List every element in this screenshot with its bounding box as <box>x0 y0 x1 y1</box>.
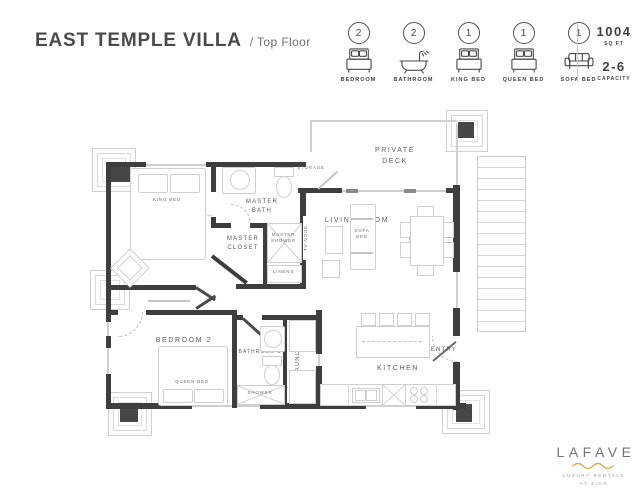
window <box>107 322 109 336</box>
door-arc <box>118 312 143 337</box>
angled-wall <box>211 254 248 284</box>
dining-chair <box>417 206 434 217</box>
pillow <box>170 174 200 193</box>
deck-railing <box>456 124 458 186</box>
brand-squiggle-icon <box>571 461 617 469</box>
sink-basin <box>366 390 377 401</box>
wall <box>211 223 231 228</box>
dining-chair <box>400 242 411 258</box>
feature-label: KING BED <box>451 77 486 83</box>
dryer <box>289 370 316 404</box>
stove-burner <box>420 387 428 395</box>
sqft-value: 1004 <box>586 24 640 39</box>
king-bed-label: KING BED <box>130 197 204 203</box>
feature-label: QUEEN BED <box>503 77 545 83</box>
column-post <box>458 122 474 138</box>
kitchen-island <box>356 326 430 358</box>
wall <box>446 188 460 193</box>
room-label-entry: ENTRY <box>424 346 464 355</box>
sink-basin <box>264 330 282 348</box>
doorway <box>318 354 320 366</box>
window <box>456 272 458 308</box>
bed-icon <box>342 48 376 74</box>
stove-burner <box>410 395 418 403</box>
room-label-tv-nook: TV NOOK <box>303 216 313 260</box>
room-label-kitchen: KITCHEN <box>376 364 420 375</box>
coffee-table <box>325 226 343 254</box>
sofa-cushion-line <box>351 218 373 220</box>
bar-stool <box>415 313 430 326</box>
counter-divider <box>348 384 349 404</box>
feature-icons: 2 BEDROOM 2 BATHROOM 1 KING BED 1 QU <box>336 22 601 83</box>
window <box>146 164 206 166</box>
hall-shelf <box>148 300 190 302</box>
page-title: EAST TEMPLE VILLA / Top Floor <box>35 30 311 52</box>
queen-bed-count-badge: 1 <box>513 22 535 44</box>
dining-chair <box>400 222 411 238</box>
villa-name: EAST TEMPLE VILLA <box>35 30 242 52</box>
room-label-master-bath: MASTER BATH <box>238 198 286 217</box>
feature-bedroom: 2 BEDROOM <box>336 22 381 83</box>
feature-queen-bed: 1 QUEEN BED <box>501 22 546 83</box>
deck-railing <box>310 122 312 152</box>
stairs <box>477 156 526 332</box>
capacity-value: 2-6 <box>586 59 640 74</box>
feature-king-bed: 1 KING BED <box>446 22 491 83</box>
dining-table <box>410 216 444 266</box>
wall <box>236 284 306 289</box>
brand-tagline-line2: AT ZION <box>552 480 636 488</box>
sofa-bed-label: SOFA BED <box>349 228 375 241</box>
room-label-linens: LINENS <box>267 269 300 275</box>
dining-chair <box>443 242 454 258</box>
washer <box>289 320 316 352</box>
brand-logo: LAFAVE LUXURY RENTALS AT ZION <box>552 444 636 488</box>
wall <box>316 310 322 354</box>
sink-basin <box>230 170 250 190</box>
door-leaf <box>317 171 337 190</box>
bar-stool <box>379 313 394 326</box>
bed-icon <box>452 48 486 74</box>
room-label-private-deck: PRIVATE DECK <box>370 146 420 168</box>
wall <box>106 162 146 167</box>
wall <box>453 308 460 336</box>
stats-panel: 1004 SQ FT 2-6 CAPACITY <box>577 24 640 82</box>
deck-railing <box>310 120 456 122</box>
bathtub-icon <box>397 48 431 74</box>
pillow <box>163 389 193 403</box>
toilet-bowl <box>276 176 292 198</box>
window <box>107 348 109 374</box>
wall <box>146 310 237 315</box>
pillow <box>194 389 224 403</box>
island-counter-line <box>362 341 422 342</box>
door-jamb <box>404 189 416 193</box>
bedroom-count-badge: 2 <box>348 22 370 44</box>
wall <box>106 285 196 290</box>
counter-divider <box>436 384 437 404</box>
room-label-shower: SHOWER <box>237 390 283 396</box>
door-jamb <box>346 189 358 193</box>
room-label-master-closet: MASTER CLOSET <box>221 235 265 254</box>
sofa-cushion-line <box>351 252 373 254</box>
floorplan-sheet: EAST TEMPLE VILLA / Top Floor 2 BEDROOM … <box>0 0 640 494</box>
bar-stool <box>361 313 376 326</box>
side-table <box>322 260 340 278</box>
dishwasher <box>382 384 406 406</box>
sink-basin <box>355 390 366 401</box>
pillow <box>138 174 168 193</box>
feature-label: BATHROOM <box>394 77 434 83</box>
wall <box>106 162 111 322</box>
wall <box>453 185 460 272</box>
feature-bathroom: 2 BATHROOM <box>391 22 436 83</box>
room-label-master-shower: MASTER SHOWER <box>264 232 303 245</box>
bar-stool <box>397 313 412 326</box>
stove-burner <box>410 387 418 395</box>
brand-name: LAFAVE <box>552 444 636 460</box>
toilet-bowl <box>264 365 280 385</box>
dining-chair <box>417 265 434 276</box>
feature-label: BEDROOM <box>341 77 377 83</box>
king-bed-count-badge: 1 <box>458 22 480 44</box>
bed-icon <box>507 48 541 74</box>
queen-bed-label: QUEEN BED <box>158 379 226 385</box>
stove-burner <box>420 395 428 403</box>
dining-chair <box>443 222 454 238</box>
wall <box>106 310 118 315</box>
room-label-storage: STORAGE <box>294 165 328 171</box>
floor-name: / Top Floor <box>250 35 311 49</box>
bathroom-count-badge: 2 <box>403 22 425 44</box>
door-leaf <box>195 295 216 310</box>
wall <box>106 336 111 348</box>
brand-tagline: LUXURY RENTALS AT ZION <box>552 472 636 488</box>
capacity-label: CAPACITY <box>586 76 640 82</box>
brand-tagline-line1: LUXURY RENTALS <box>552 472 636 480</box>
wall <box>211 162 216 192</box>
